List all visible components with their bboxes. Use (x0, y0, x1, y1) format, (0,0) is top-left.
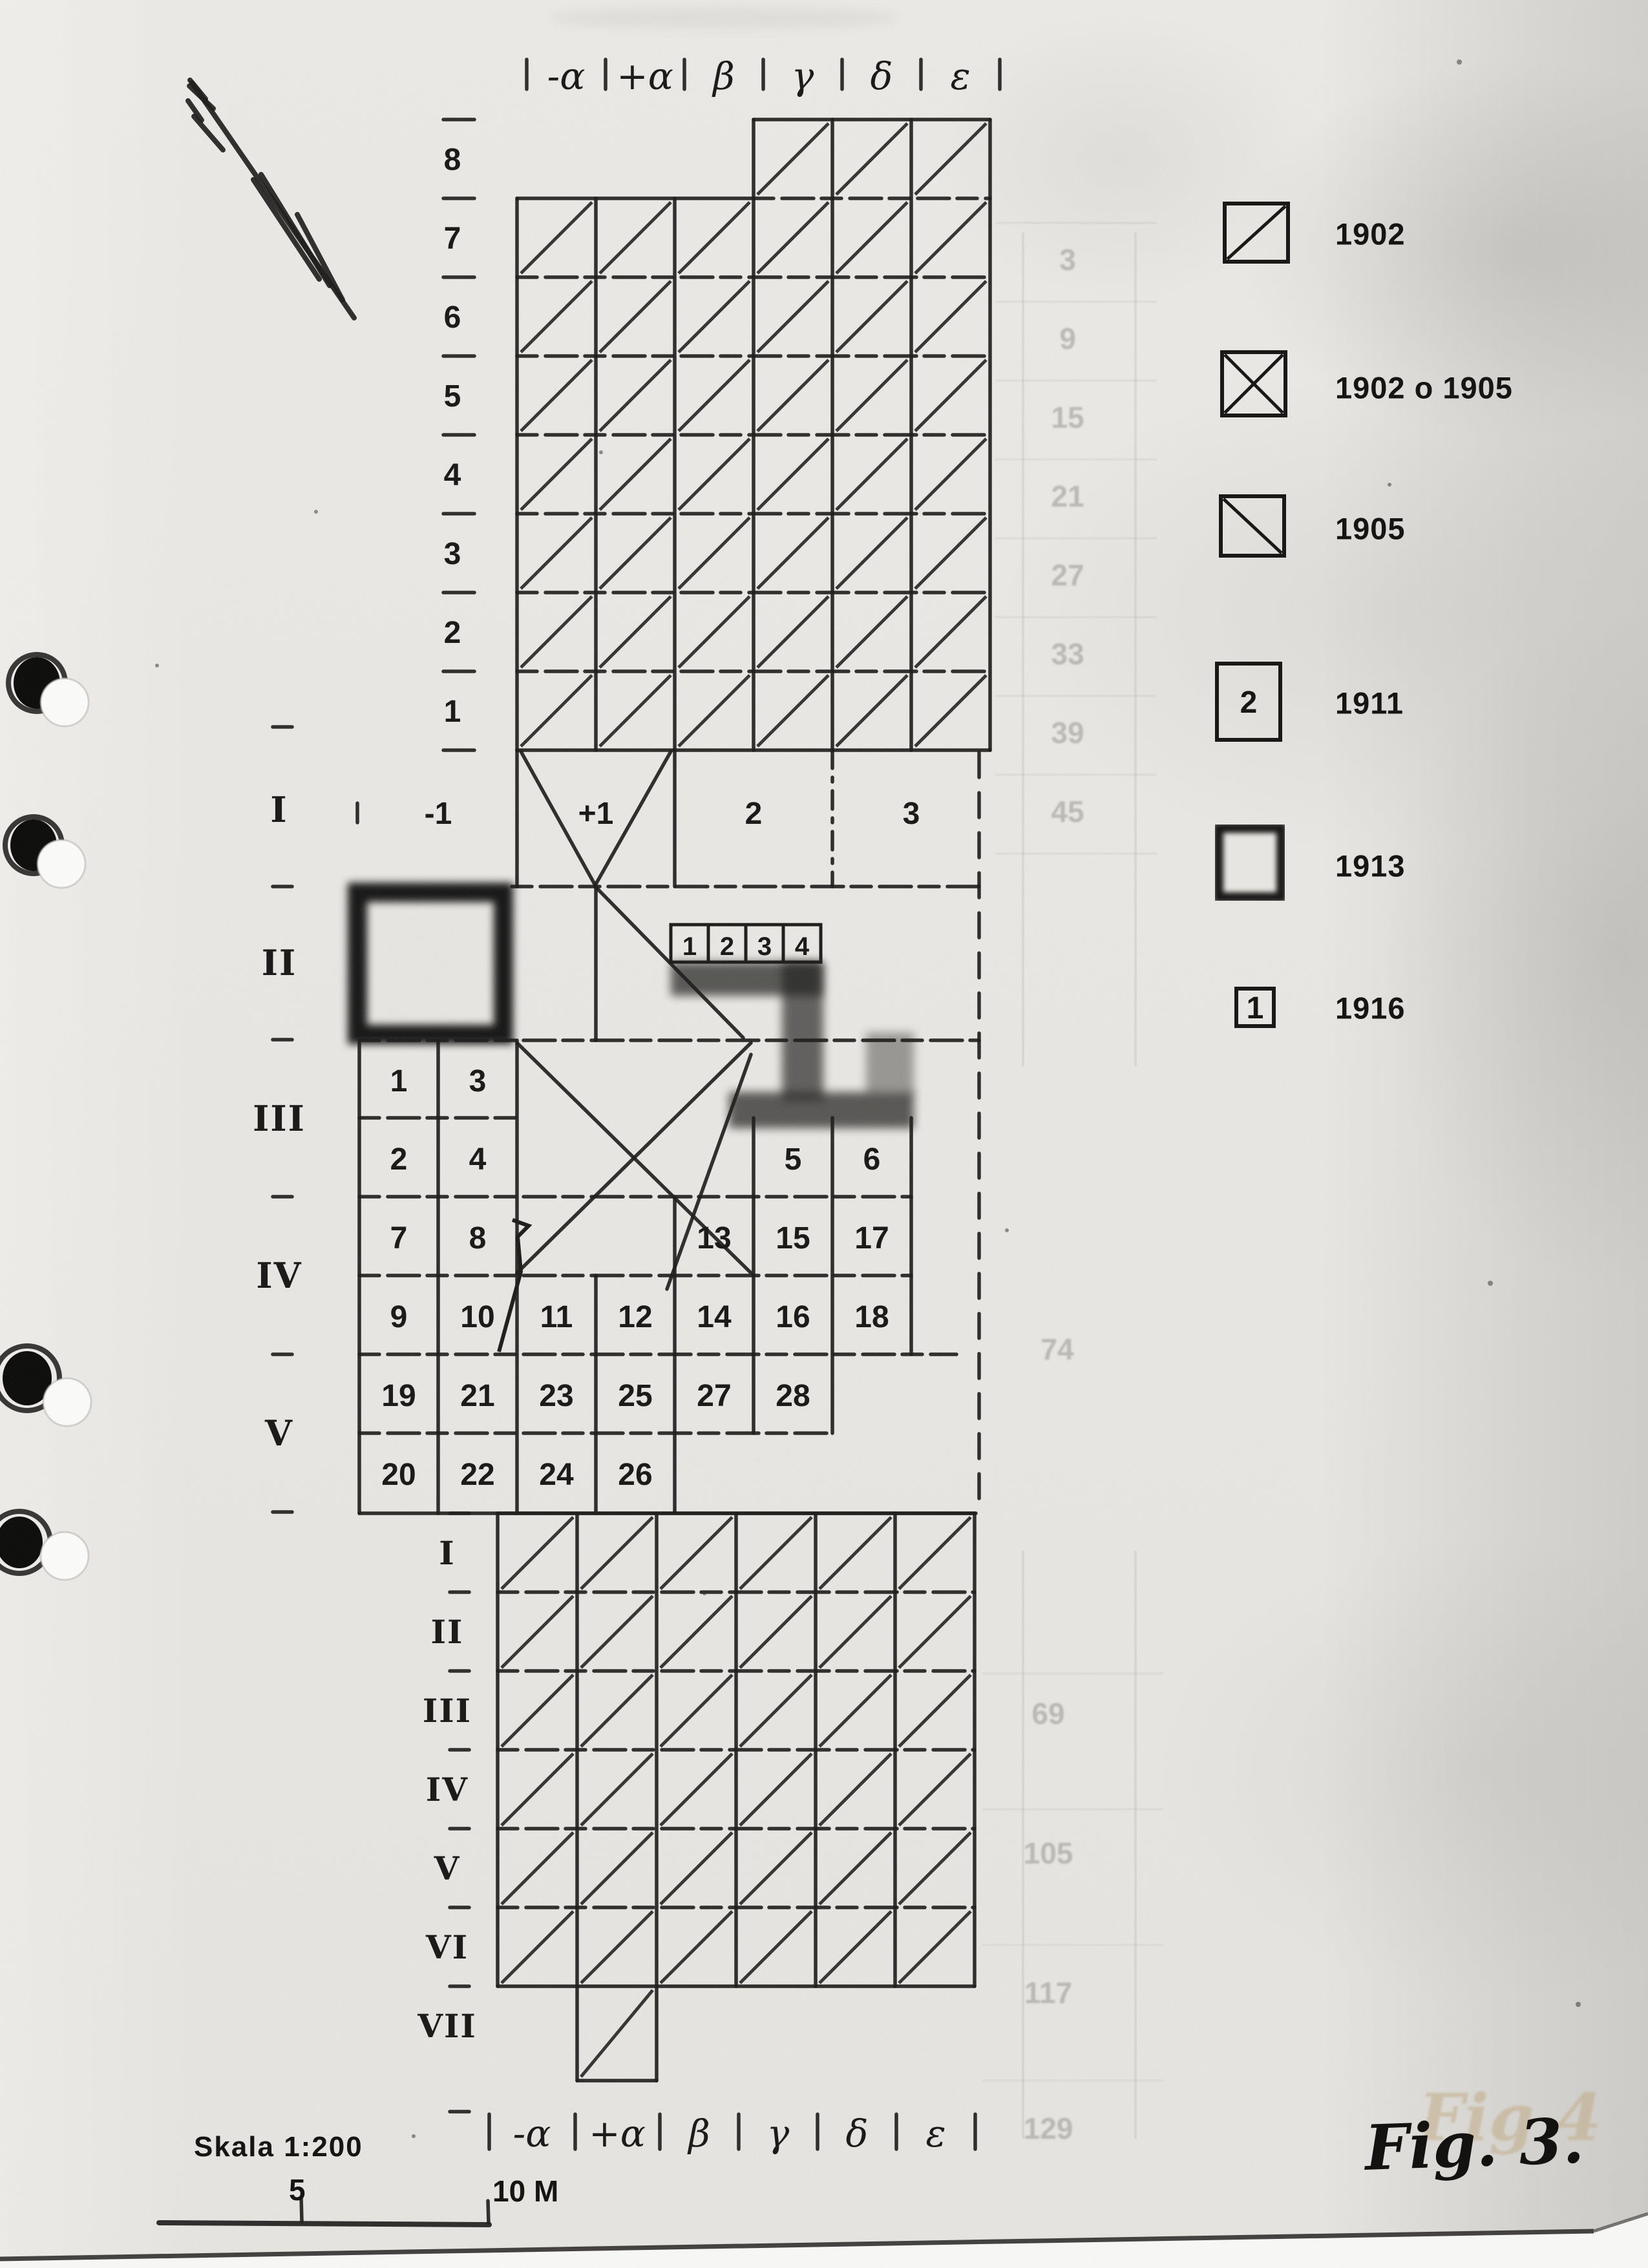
excavation-plan-drawing: 391521273339457469105117129 87654321-α+α… (0, 0, 1648, 2268)
paper-grain-texture (0, 0, 1648, 2268)
scale-mid-tick-label: 5 (289, 2172, 306, 2207)
scanned-page: 391521273339457469105117129 87654321-α+α… (0, 0, 1648, 2268)
figure-caption: Fig. 3. (1364, 2104, 1585, 2185)
scale-end-tick-label: 10 M (492, 2174, 558, 2209)
scale-label: Skala 1:200 (194, 2131, 363, 2163)
